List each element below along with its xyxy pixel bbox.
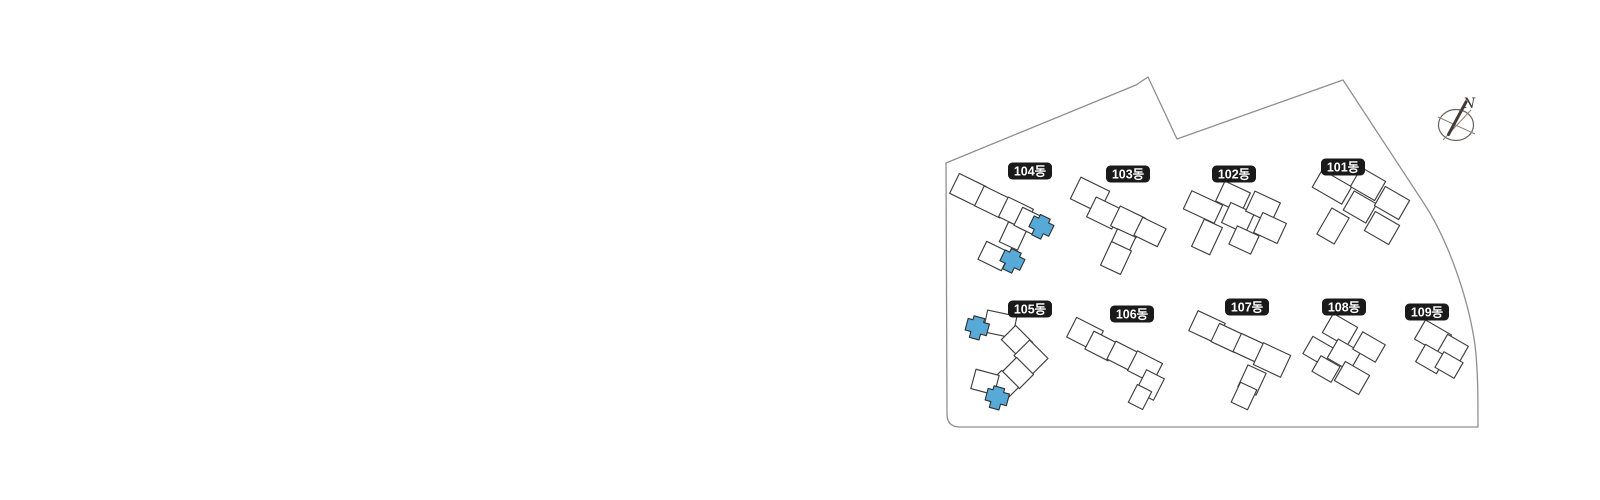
building-101-badge[interactable]: 101동 bbox=[1321, 159, 1365, 176]
building-108[interactable] bbox=[1303, 313, 1385, 394]
building-107[interactable] bbox=[1189, 311, 1291, 410]
badge-label: 105동 bbox=[1014, 303, 1047, 317]
building-103-badge[interactable]: 103동 bbox=[1106, 166, 1150, 183]
building-105[interactable] bbox=[964, 310, 1048, 411]
building-107-badge[interactable]: 107동 bbox=[1225, 299, 1269, 316]
badge-label: 108동 bbox=[1328, 301, 1361, 315]
badge-label: 102동 bbox=[1218, 168, 1251, 182]
building-109-badge[interactable]: 109동 bbox=[1405, 304, 1449, 321]
compass-north-icon: N bbox=[1438, 96, 1476, 141]
badge-label: 109동 bbox=[1411, 306, 1444, 320]
site-plan-canvas: 101동 102동 103동 104동 105동 106동 107동 108동 bbox=[0, 0, 1600, 500]
building-104-badge[interactable]: 104동 bbox=[1008, 163, 1052, 180]
building-104[interactable] bbox=[950, 174, 1056, 276]
badge-label: 106동 bbox=[1116, 308, 1149, 322]
compass-cross-line bbox=[1443, 110, 1471, 140]
site-plan-page: 101동 102동 103동 104동 105동 106동 107동 108동 bbox=[0, 0, 1600, 500]
building-102[interactable] bbox=[1183, 181, 1286, 255]
building-106[interactable] bbox=[1067, 317, 1165, 409]
building-109[interactable] bbox=[1415, 320, 1469, 378]
badge-label: 104동 bbox=[1014, 165, 1047, 179]
building-108-badge[interactable]: 108동 bbox=[1322, 299, 1366, 316]
building-module bbox=[1183, 191, 1222, 223]
building-106-badge[interactable]: 106동 bbox=[1110, 306, 1154, 323]
building-105-badge[interactable]: 105동 bbox=[1008, 301, 1052, 318]
badge-label: 101동 bbox=[1327, 161, 1360, 175]
badge-label: 107동 bbox=[1231, 301, 1264, 315]
compass-north-label: N bbox=[1462, 96, 1476, 112]
building-module bbox=[1317, 208, 1349, 244]
building-module bbox=[1192, 219, 1223, 255]
building-102-badge[interactable]: 102동 bbox=[1212, 166, 1256, 183]
badge-label: 103동 bbox=[1112, 168, 1145, 182]
building-101[interactable] bbox=[1312, 167, 1409, 244]
building-103[interactable] bbox=[1070, 177, 1166, 274]
